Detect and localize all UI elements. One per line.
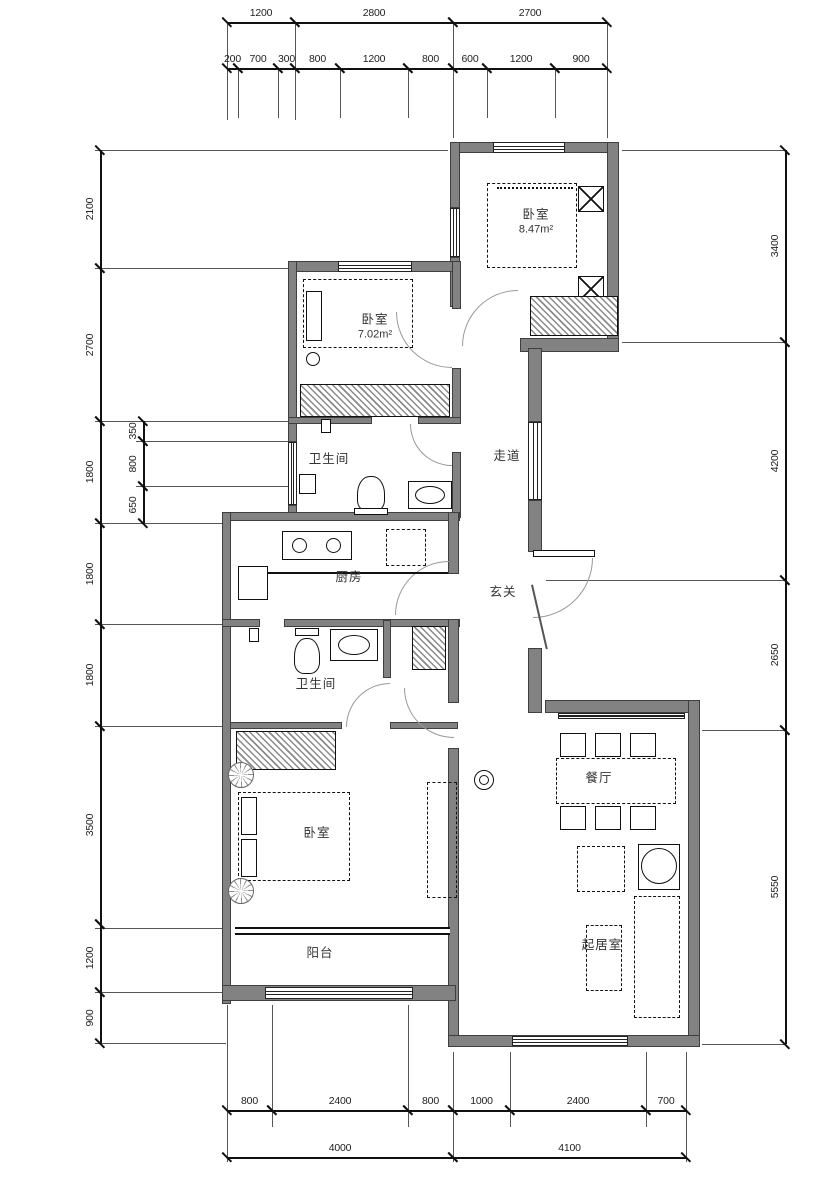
room-name: 起居室 [582, 937, 623, 953]
room-name: 阳台 [306, 945, 333, 961]
room-area: 7.02m² [358, 328, 392, 342]
floor-plan-canvas: 1200280027002007003008001200800600120090… [0, 0, 831, 1179]
room-label-foyer: 玄关 [489, 584, 516, 600]
room-label-bathroom-lower: 卫生间 [296, 676, 337, 692]
room-label-bathroom-upper: 卫生间 [309, 451, 350, 467]
room-name: 卫生间 [296, 676, 337, 692]
room-label-bedroom-southwest: 卧室 [303, 825, 330, 841]
room-area: 8.47m² [519, 223, 553, 237]
room-label-dining-room: 餐厅 [585, 770, 612, 786]
room-name: 餐厅 [585, 770, 612, 786]
room-name: 玄关 [489, 584, 516, 600]
room-label-living-room: 起居室 [582, 937, 623, 953]
room-name: 卧室 [519, 207, 553, 223]
room-label-corridor: 走道 [493, 448, 520, 464]
room-name: 卫生间 [309, 451, 350, 467]
room-name: 卧室 [358, 312, 392, 328]
room-label-bedroom-northeast: 卧室8.47m² [519, 207, 553, 238]
room-name: 走道 [493, 448, 520, 464]
room-name: 卧室 [303, 825, 330, 841]
room-label-balcony: 阳台 [306, 945, 333, 961]
room-label-kitchen: 厨房 [335, 569, 362, 585]
room-name: 厨房 [335, 569, 362, 585]
room-labels-layer: 卧室8.47m²卧室7.02m²卫生间走道厨房玄关卫生间餐厅卧室起居室阳台 [0, 0, 831, 1179]
room-label-bedroom-north: 卧室7.02m² [358, 312, 392, 343]
